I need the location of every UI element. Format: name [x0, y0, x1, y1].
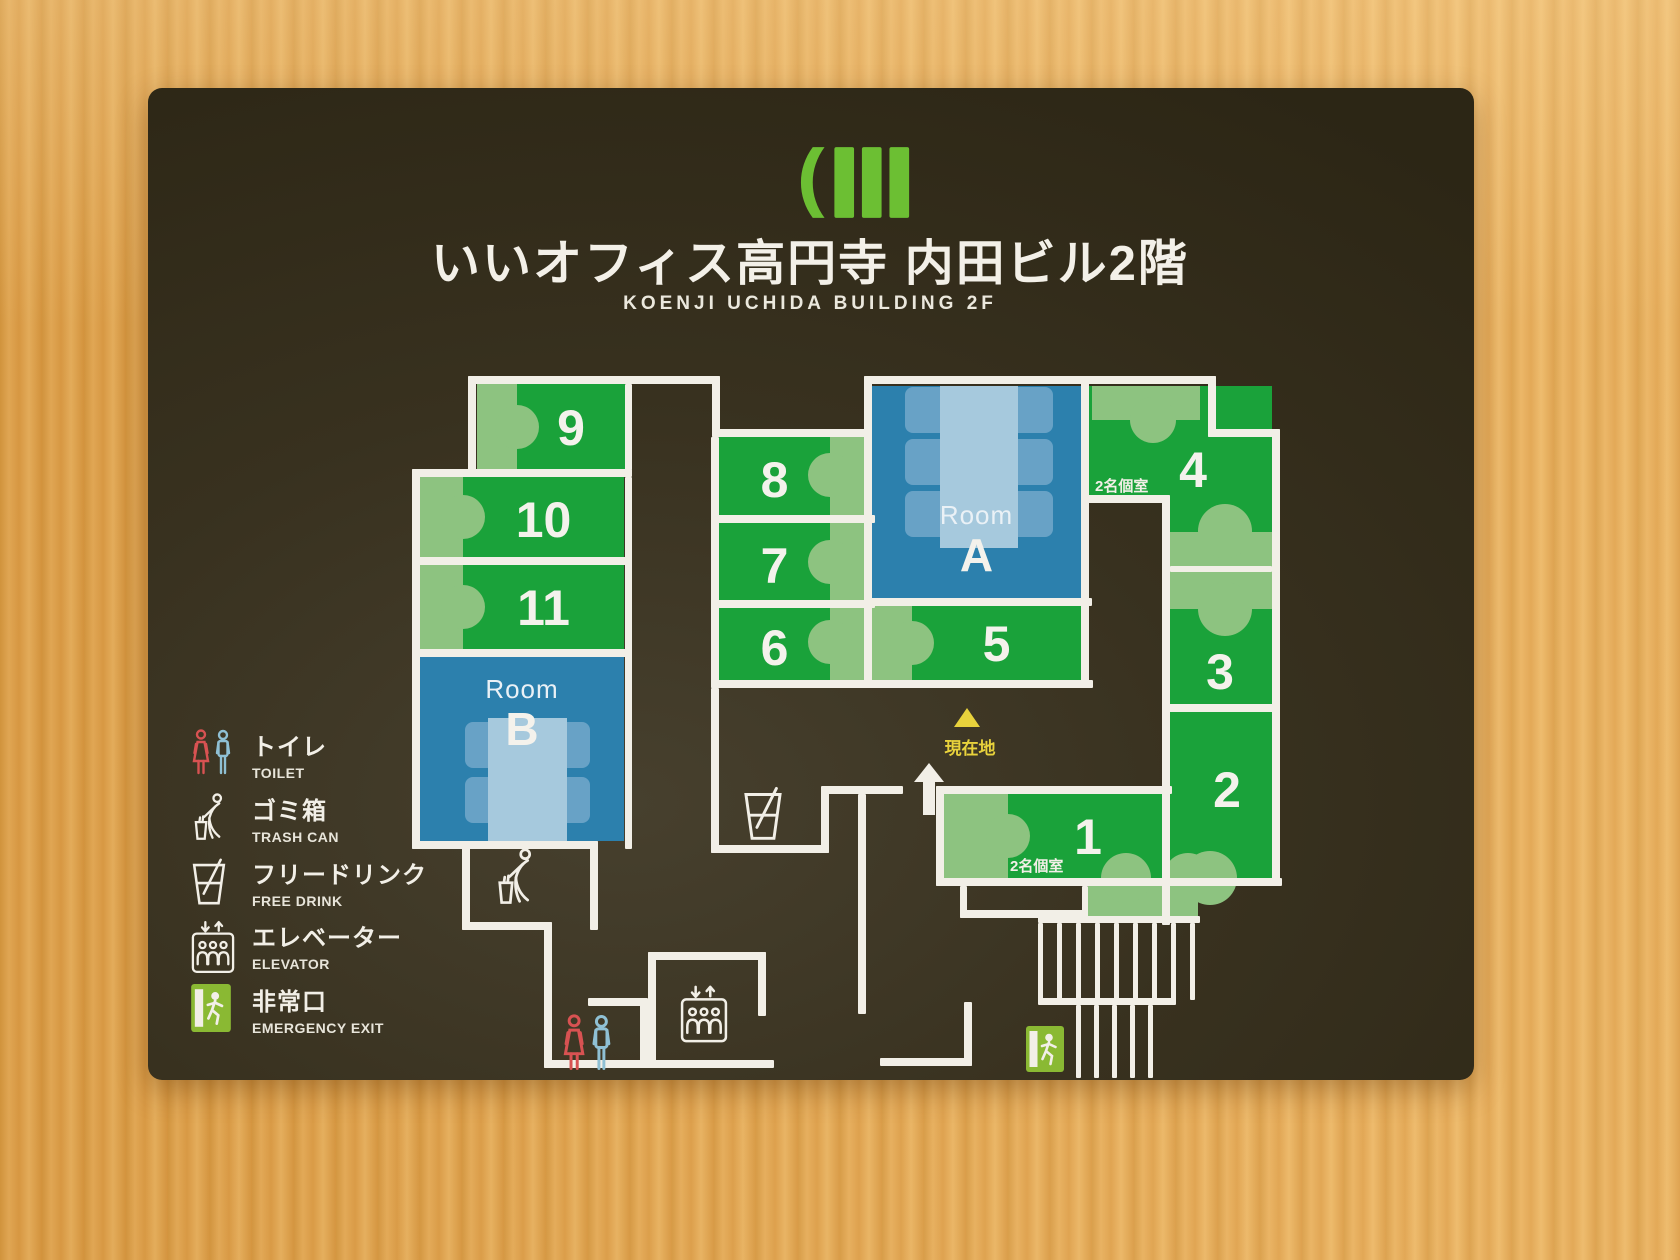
wall: [412, 649, 632, 657]
stair-step: [1171, 923, 1176, 1000]
trash-can-icon: [494, 848, 544, 910]
stair-step: [1076, 1005, 1081, 1078]
wall: [1162, 704, 1280, 712]
legend-label-jp: エレベーター: [252, 918, 471, 953]
wall: [711, 680, 1093, 688]
wall: [625, 384, 632, 470]
stair-step: [1076, 923, 1081, 1000]
booth-9-number: 9: [517, 398, 625, 458]
legend-label-en: EMERGENCY EXIT: [252, 1020, 471, 1036]
stair-step: [1094, 1005, 1099, 1078]
booth-5-number: 5: [912, 614, 1081, 674]
free-drink-icon: [742, 786, 784, 842]
room-a-word: Room: [872, 500, 1081, 531]
booth-8-number: 8: [719, 450, 830, 510]
wall: [544, 922, 552, 1068]
toilet-icon: [560, 1014, 618, 1076]
stair-step: [1130, 1005, 1135, 1078]
wall: [711, 845, 829, 853]
legend-label-en: ELEVATOR: [252, 956, 471, 972]
legend-label-en: TRASH CAN: [252, 829, 471, 845]
wall: [1208, 429, 1280, 437]
stair-step: [1095, 923, 1100, 1000]
wall: [468, 376, 720, 384]
stair-step: [1190, 923, 1195, 1000]
current-location-label: 現在地: [916, 734, 1024, 759]
wall: [712, 429, 872, 437]
stair-step: [1152, 923, 1157, 1000]
chair: [1130, 397, 1176, 443]
emergency-exit-icon: [1026, 1026, 1064, 1072]
wall: [758, 952, 766, 1016]
stair-step: [1133, 923, 1138, 1000]
booth-11-number: 11: [463, 578, 624, 638]
wall: [462, 922, 552, 930]
logo-bar: [889, 147, 909, 218]
wall: [864, 598, 1092, 606]
trash-can-icon: [191, 793, 233, 845]
booth-6-number: 6: [719, 618, 830, 678]
wall: [625, 477, 632, 849]
wall: [936, 786, 1172, 794]
wall: [821, 790, 829, 853]
wall: [858, 794, 866, 1014]
wall: [864, 598, 872, 688]
legend-label-en: FREE DRINK: [252, 893, 471, 909]
wall: [864, 376, 872, 606]
wall: [711, 688, 719, 853]
legend-label-en: TOILET: [252, 765, 471, 781]
elevator-icon: [191, 920, 235, 974]
legend-item-trash: ゴミ箱 TRASH CAN: [191, 791, 471, 845]
wall: [590, 841, 598, 930]
floor-sign-photo: いいオフィス高円寺 内田ビル2階 KOENJI UCHIDA BUILDING …: [0, 0, 1680, 1260]
emergency-exit-icon: [191, 984, 231, 1032]
legend-item-drink: フリードリンク FREE DRINK: [191, 855, 471, 909]
stair-step: [1038, 923, 1043, 1000]
legend-label-jp: ゴミ箱: [252, 791, 471, 826]
stair-step: [1057, 923, 1062, 1000]
wall: [1081, 376, 1089, 688]
booth-2-number: 2: [1177, 760, 1277, 820]
wall: [468, 376, 476, 470]
elevator-icon: [680, 984, 728, 1044]
wall: [1038, 916, 1200, 923]
wall: [1208, 376, 1216, 437]
current-location-triangle: [954, 708, 980, 727]
booth-7-number: 7: [719, 536, 830, 596]
booth-10-number: 10: [463, 490, 624, 550]
room-b-letter: B: [420, 702, 624, 756]
wall: [864, 376, 1216, 384]
legend-label-jp: フリードリンク: [252, 855, 471, 890]
private-room-label-booth4: 2名個室: [1095, 475, 1148, 496]
wall: [648, 952, 766, 960]
chair: [1198, 504, 1252, 558]
wall: [640, 998, 648, 1068]
wall: [412, 557, 632, 565]
legend-item-exit: 非常口 EMERGENCY EXIT: [191, 982, 471, 1036]
entrance-arrow-icon: [911, 762, 947, 816]
logo-bar: [862, 147, 882, 218]
ii-office-logo: [798, 147, 916, 218]
logo-bar-curved: [801, 147, 825, 218]
stair-step: [1114, 923, 1119, 1000]
wall: [412, 469, 632, 477]
wall: [588, 998, 646, 1006]
chair: [986, 814, 1030, 858]
private-room-label-booth1: 2名個室: [1010, 855, 1063, 876]
wall: [936, 878, 1282, 886]
toilet-icon: [191, 729, 235, 779]
room-a-letter: A: [872, 528, 1081, 582]
stair-step: [1112, 1005, 1117, 1078]
wall: [712, 376, 720, 437]
stair-step: [1148, 1005, 1153, 1078]
wall: [1170, 566, 1272, 572]
wall: [711, 515, 875, 523]
sign-subtitle: KOENJI UCHIDA BUILDING 2F: [270, 293, 1350, 315]
booth-3-number: 3: [1170, 642, 1270, 702]
legend-item-elevator: エレベーター ELEVATOR: [191, 918, 471, 972]
free-drink-icon: [191, 857, 227, 907]
wall: [648, 952, 656, 1068]
logo-bar: [834, 147, 854, 218]
wall: [880, 1058, 972, 1066]
sign-title: いいオフィス高円寺 内田ビル2階: [270, 224, 1350, 295]
legend-label-jp: 非常口: [252, 982, 471, 1017]
chair: [1198, 582, 1252, 636]
wall: [711, 600, 875, 608]
wall: [1082, 886, 1088, 918]
wall: [964, 1002, 972, 1066]
room-b-word: Room: [420, 674, 624, 705]
booth-4-number: 4: [1143, 440, 1243, 500]
wall: [821, 786, 903, 794]
wall: [711, 437, 719, 688]
